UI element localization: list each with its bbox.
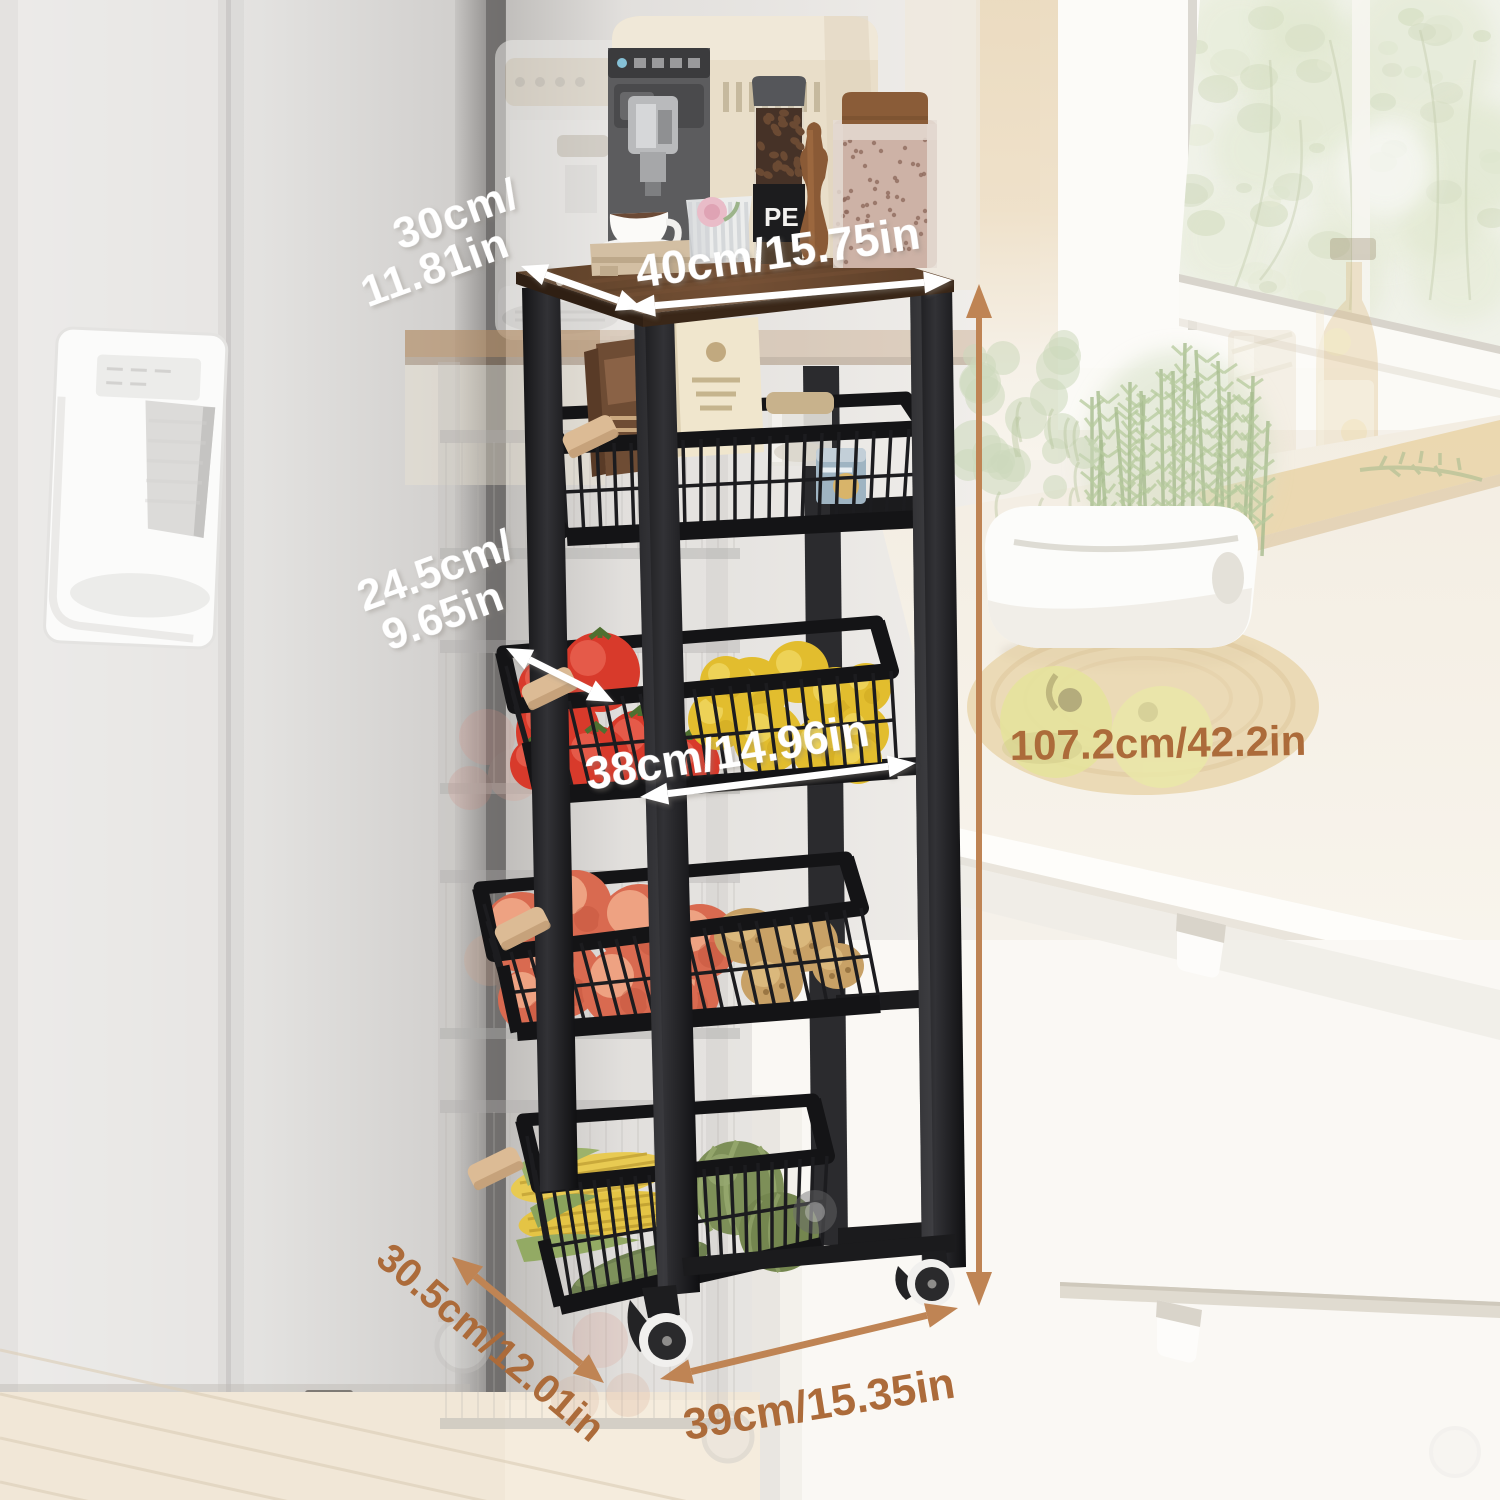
svg-text:107.2cm/42.2in: 107.2cm/42.2in: [1009, 717, 1306, 769]
